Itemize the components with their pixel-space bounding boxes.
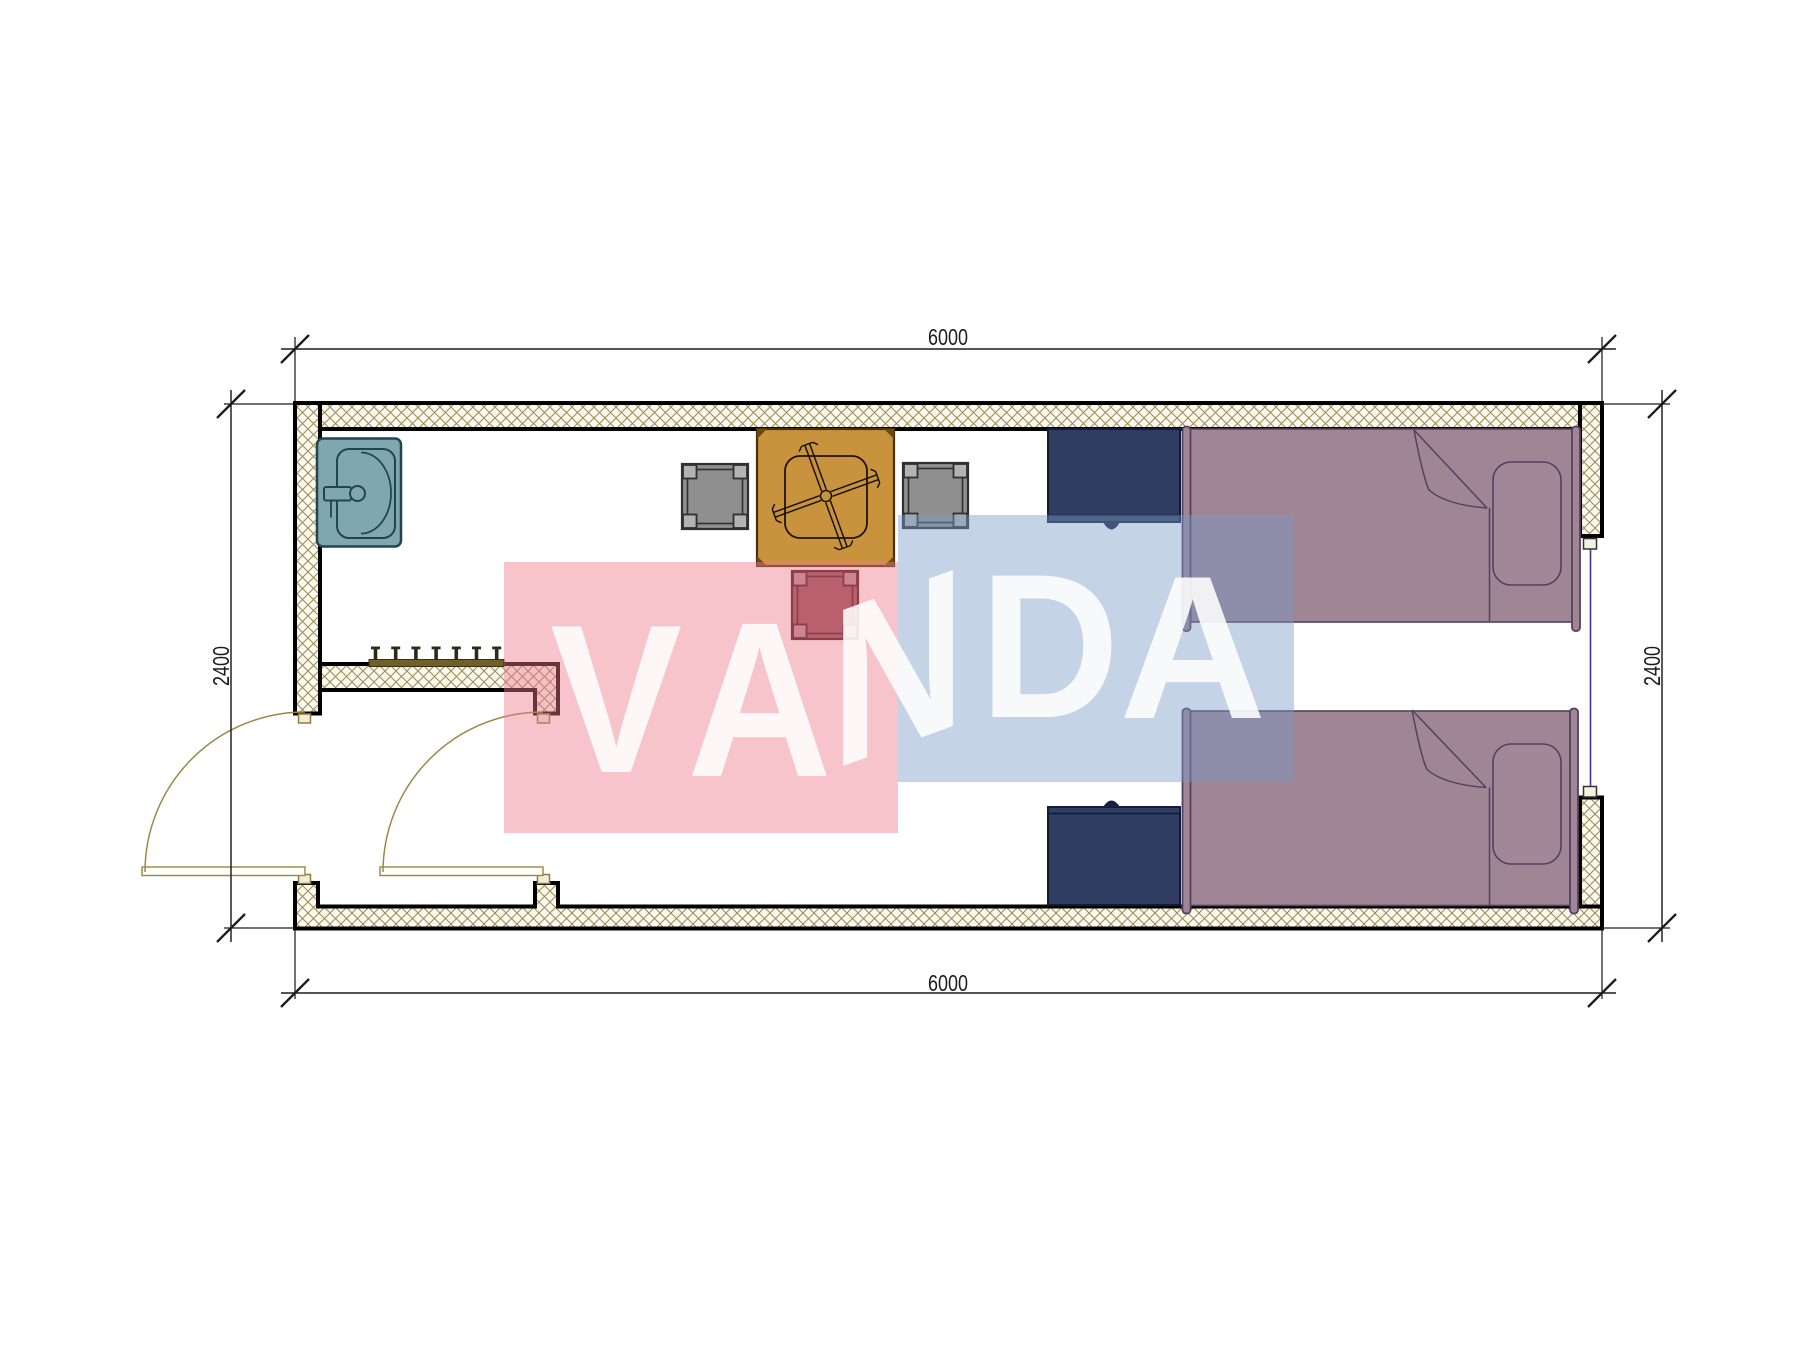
- svg-text:2400: 2400: [1639, 646, 1665, 686]
- svg-text:A: A: [1119, 534, 1266, 762]
- svg-text:D: D: [979, 532, 1119, 761]
- svg-text:2400: 2400: [208, 646, 234, 686]
- svg-text:N: N: [831, 517, 966, 819]
- svg-text:6000: 6000: [928, 970, 968, 996]
- svg-text:A: A: [687, 576, 832, 823]
- svg-text:6000: 6000: [928, 324, 968, 350]
- svg-text:V: V: [550, 582, 682, 817]
